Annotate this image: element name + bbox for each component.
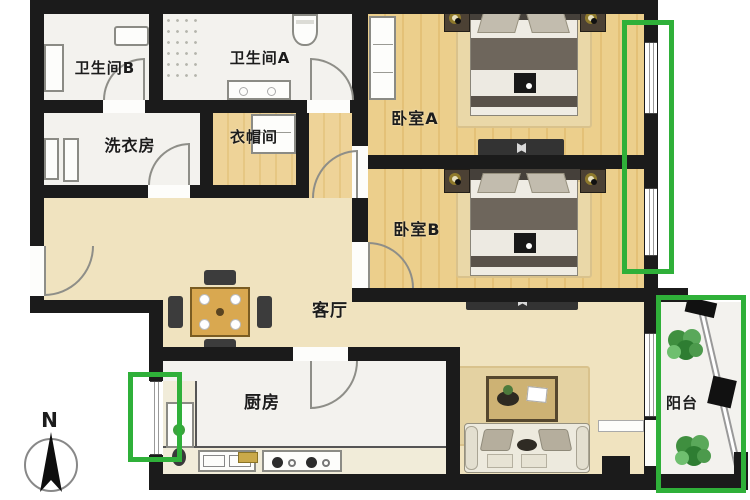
- label-bedroom-b: 卧室B: [376, 216, 458, 240]
- chair: [204, 270, 236, 285]
- balcony-door-panel: [598, 420, 644, 432]
- stove-icon: [262, 450, 342, 472]
- coffee-table: [486, 376, 558, 422]
- chair: [168, 296, 183, 328]
- compass-north-label: N: [16, 408, 84, 432]
- label-bathroom-a: 卫生间A: [210, 47, 310, 68]
- bed-runner: [514, 233, 536, 253]
- wall-bath-divider: [149, 14, 163, 100]
- blanket: [471, 38, 577, 70]
- label-laundry: 洗衣房: [82, 132, 178, 156]
- wall-stub-living: [602, 456, 630, 474]
- wall-kitchen-top-1: [163, 347, 293, 361]
- floor-plan: 卫生间B 卫生间A 洗衣房 衣帽间 卧室A 卧室B 客厅 厨房 阳台 N: [0, 0, 750, 500]
- sofa: [464, 423, 590, 473]
- wall-under-bath-2: [145, 100, 307, 113]
- bed-bedroom-b: [470, 168, 578, 276]
- pillow: [477, 13, 521, 33]
- wall-kitchen-left-upper: [149, 313, 163, 381]
- dining-table: [168, 270, 272, 354]
- washer: [44, 138, 59, 180]
- wall-step: [30, 300, 163, 313]
- label-bedroom-a: 卧室A: [374, 105, 456, 129]
- table-top: [190, 287, 250, 337]
- label-cloakroom: 衣帽间: [211, 126, 297, 147]
- compass-needle: [22, 430, 80, 498]
- wall-kitchen-right: [446, 347, 460, 476]
- nightstand: [444, 169, 470, 193]
- wall-kitchen-top-2: [348, 347, 446, 361]
- bed-foot: [471, 96, 577, 107]
- pillow: [477, 173, 521, 193]
- wall-bedrooms-left-1: [352, 14, 368, 146]
- vanity-bathroom-a: [227, 80, 291, 100]
- bedroom-b-door-gap: [352, 242, 368, 288]
- bathroom-b-door-gap: [103, 100, 145, 113]
- nightstand: [580, 169, 606, 193]
- wall-under-laundry-1: [30, 185, 148, 198]
- pillow: [526, 173, 570, 193]
- dryer: [63, 138, 79, 182]
- wall-between-bedrooms: [360, 155, 644, 169]
- highlight-balcony: [656, 295, 746, 493]
- wall-under-bedroom-b: [352, 288, 658, 302]
- bed-runner: [514, 73, 536, 93]
- shower-area: [164, 15, 200, 77]
- bed-foot: [471, 256, 577, 267]
- pillow: [526, 13, 570, 33]
- laundry-door-gap: [148, 185, 190, 198]
- blanket: [471, 198, 577, 230]
- entry-door-gap: [30, 246, 44, 296]
- tv-console-bedroom: [478, 139, 564, 156]
- toilet-icon: [292, 14, 318, 46]
- wall-top: [30, 0, 658, 14]
- drain-board: [238, 452, 258, 463]
- bathroom-a-door-gap: [307, 100, 350, 113]
- highlight-kitchen-window: [128, 372, 182, 462]
- wall-under-laundry-2: [190, 185, 307, 198]
- wall-bedrooms-left-2: [352, 198, 368, 242]
- highlight-bedroom-windows: [622, 20, 674, 274]
- chair: [257, 296, 272, 328]
- label-living: 客厅: [296, 296, 364, 321]
- bed-bedroom-a: [470, 8, 578, 116]
- wall-under-bath-1: [30, 100, 103, 113]
- label-bathroom-b: 卫生间B: [60, 57, 150, 78]
- kitchen-door-gap: [293, 347, 348, 361]
- compass-icon: N: [16, 408, 84, 498]
- wardrobe: [369, 16, 396, 100]
- vanity-bathroom-b: [114, 26, 149, 46]
- wall-left-upper: [30, 0, 44, 248]
- label-kitchen: 厨房: [228, 388, 296, 413]
